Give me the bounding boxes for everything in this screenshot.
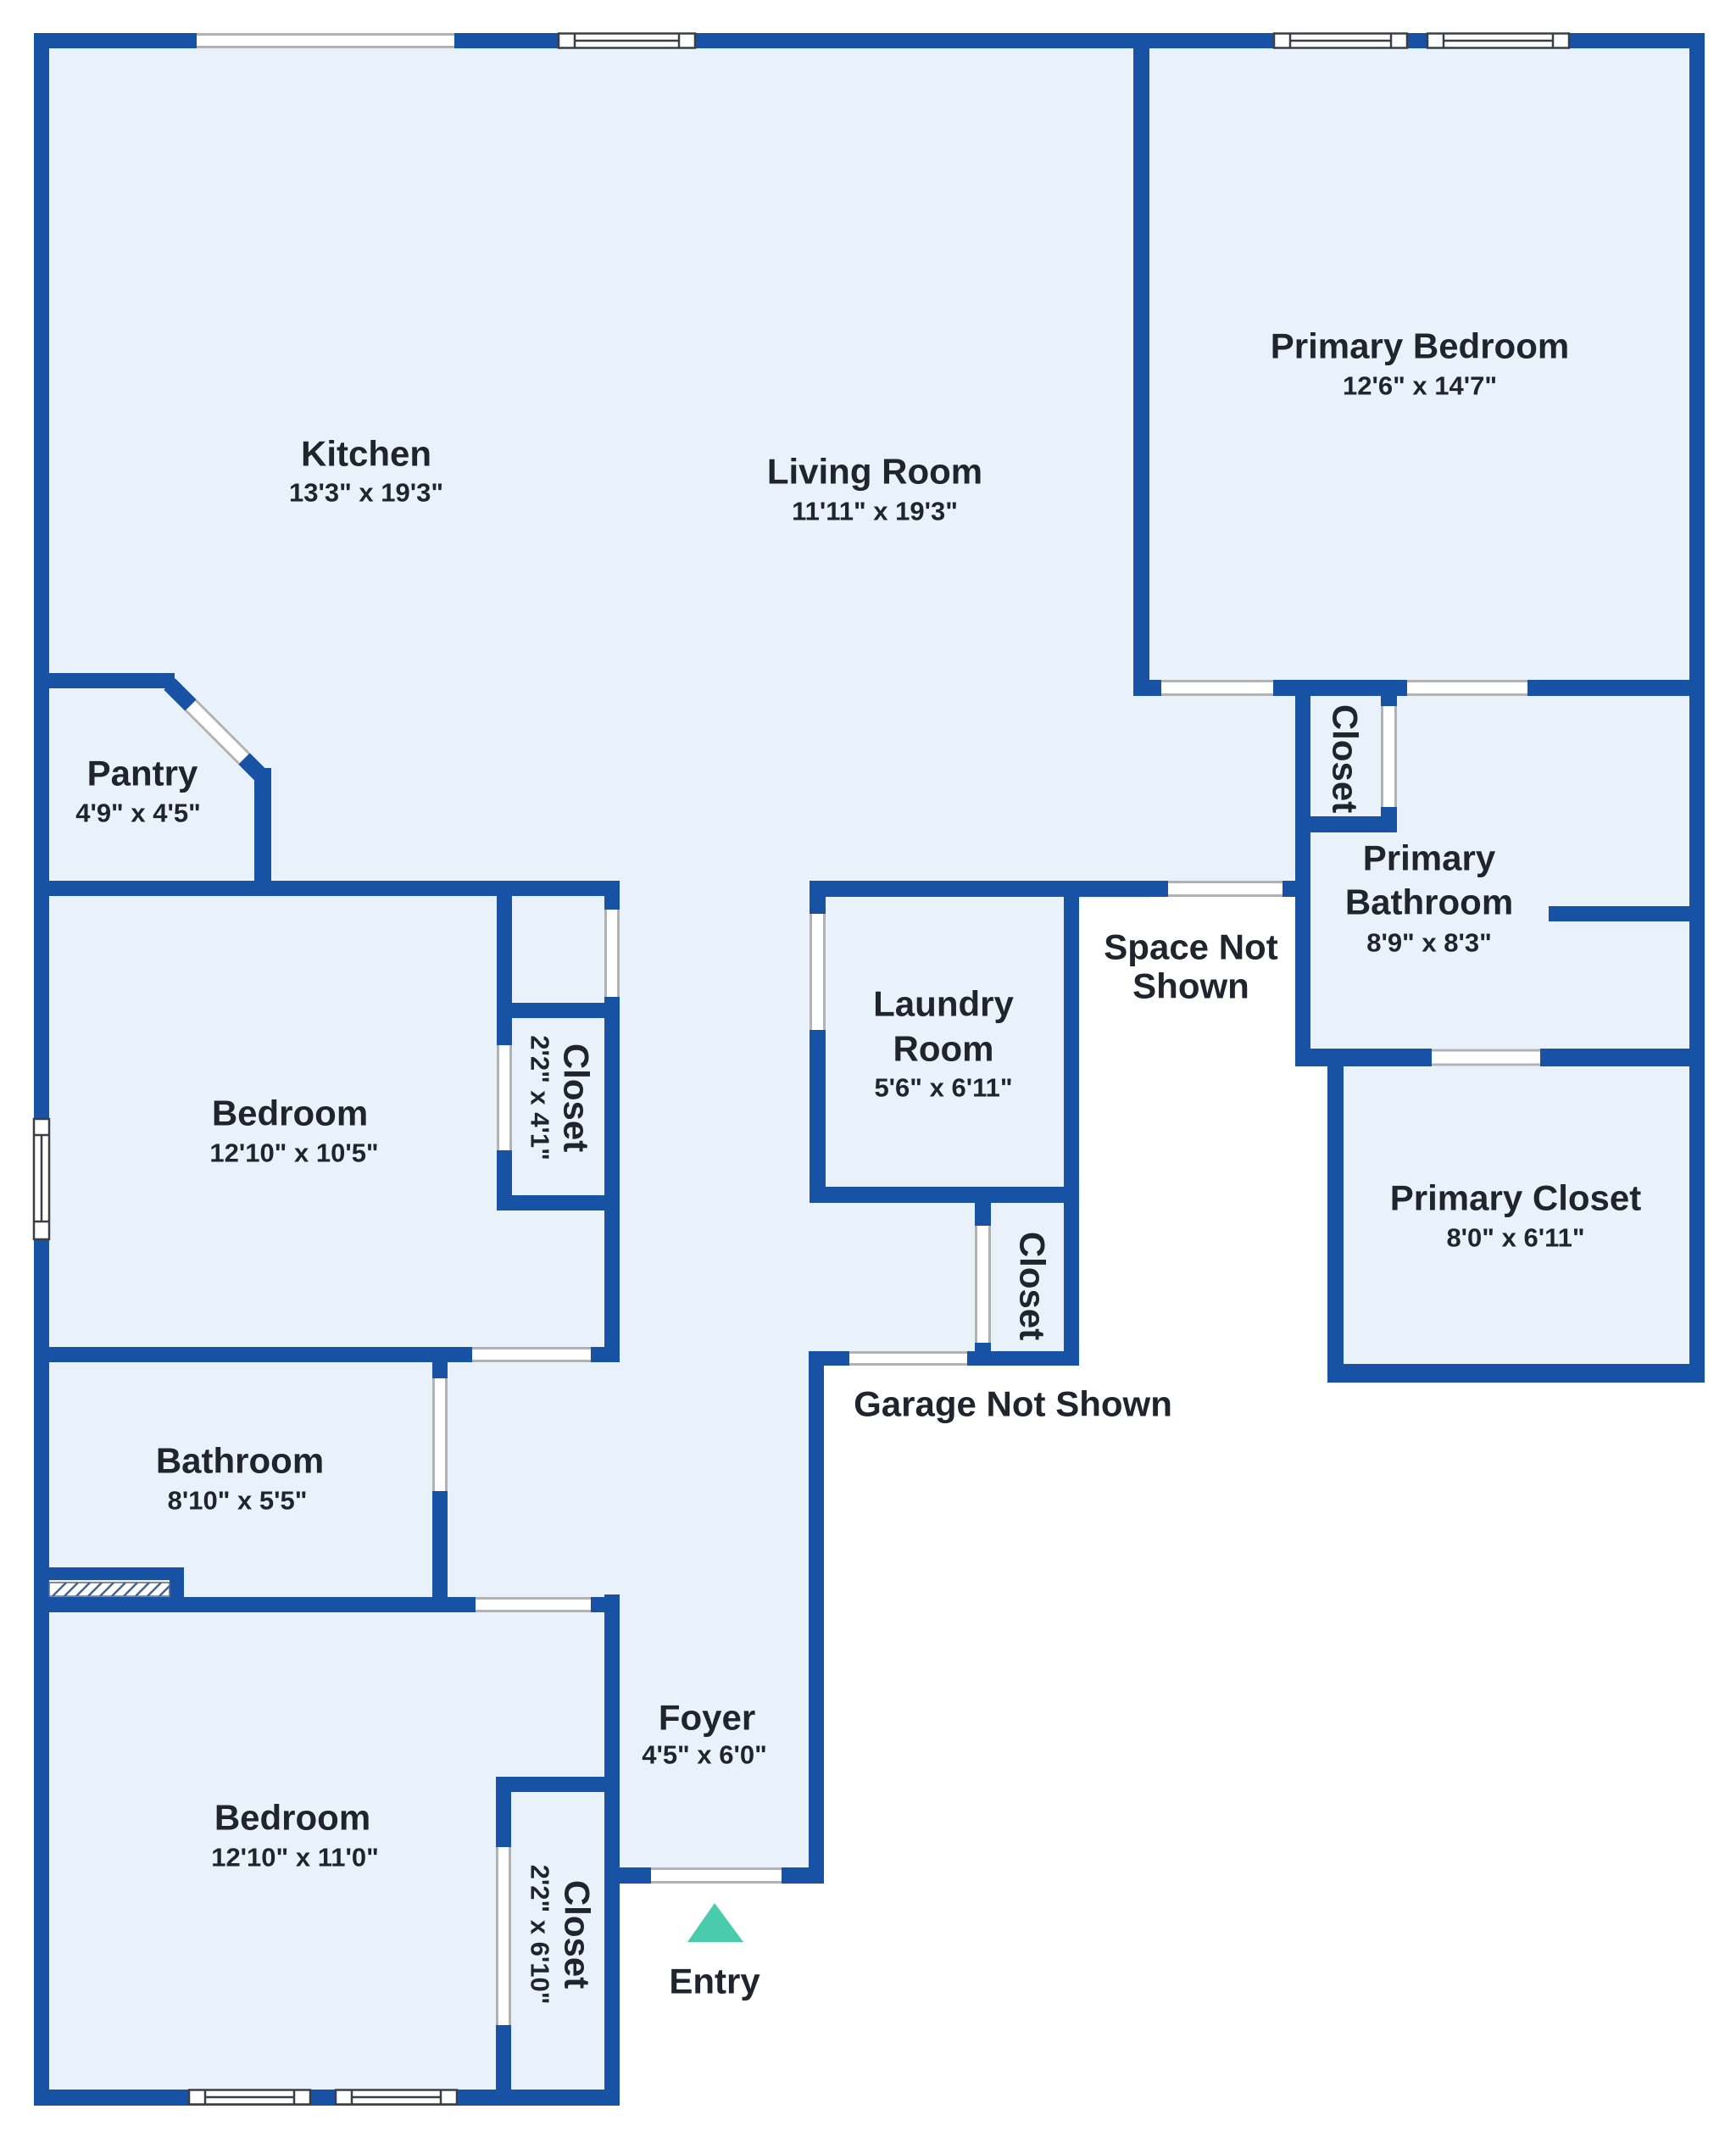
- svg-text:8'9" x 8'3": 8'9" x 8'3": [1366, 928, 1492, 958]
- svg-text:2'2" x 6'10": 2'2" x 6'10": [526, 1865, 555, 2005]
- svg-text:Bathroom: Bathroom: [156, 1441, 324, 1481]
- svg-text:8'10" x 5'5": 8'10" x 5'5": [168, 1486, 308, 1516]
- svg-text:4'9" x 4'5": 4'9" x 4'5": [75, 799, 201, 828]
- svg-text:Kitchen: Kitchen: [301, 434, 431, 474]
- svg-text:Bathroom: Bathroom: [1345, 882, 1513, 922]
- svg-text:Pantry: Pantry: [87, 754, 198, 793]
- svg-text:Laundry: Laundry: [873, 984, 1014, 1024]
- svg-text:Garage Not Shown: Garage Not Shown: [854, 1384, 1172, 1424]
- svg-text:2'2" x 4'1": 2'2" x 4'1": [526, 1035, 555, 1160]
- svg-text:Foyer: Foyer: [659, 1698, 755, 1738]
- svg-text:Primary Bedroom: Primary Bedroom: [1271, 326, 1569, 366]
- svg-text:12'6" x 14'7": 12'6" x 14'7": [1343, 371, 1497, 401]
- svg-text:Primary Closet: Primary Closet: [1390, 1178, 1641, 1218]
- svg-text:Shown: Shown: [1132, 966, 1249, 1006]
- svg-text:Entry: Entry: [669, 1962, 760, 2001]
- svg-text:Closet: Closet: [557, 1043, 597, 1152]
- svg-text:Closet: Closet: [1013, 1232, 1053, 1340]
- svg-text:Room: Room: [893, 1029, 994, 1069]
- svg-text:12'10" x 11'0": 12'10" x 11'0": [211, 1843, 379, 1873]
- svg-text:Closet: Closet: [1326, 704, 1366, 813]
- svg-text:5'6" x 6'11": 5'6" x 6'11": [874, 1073, 1012, 1103]
- svg-text:11'11" x 19'3": 11'11" x 19'3": [792, 497, 958, 526]
- svg-text:12'10" x 10'5": 12'10" x 10'5": [209, 1138, 378, 1168]
- svg-text:Bedroom: Bedroom: [212, 1094, 368, 1133]
- svg-text:Living Room: Living Room: [767, 452, 982, 492]
- svg-text:13'3" x 19'3": 13'3" x 19'3": [289, 478, 443, 508]
- svg-text:4'5" x 6'0": 4'5" x 6'0": [642, 1740, 767, 1770]
- svg-text:Primary: Primary: [1363, 838, 1496, 878]
- svg-text:Closet: Closet: [558, 1880, 598, 1989]
- svg-text:8'0" x 6'11": 8'0" x 6'11": [1446, 1223, 1584, 1253]
- svg-text:Space Not: Space Not: [1104, 927, 1277, 967]
- svg-text:Bedroom: Bedroom: [214, 1798, 370, 1838]
